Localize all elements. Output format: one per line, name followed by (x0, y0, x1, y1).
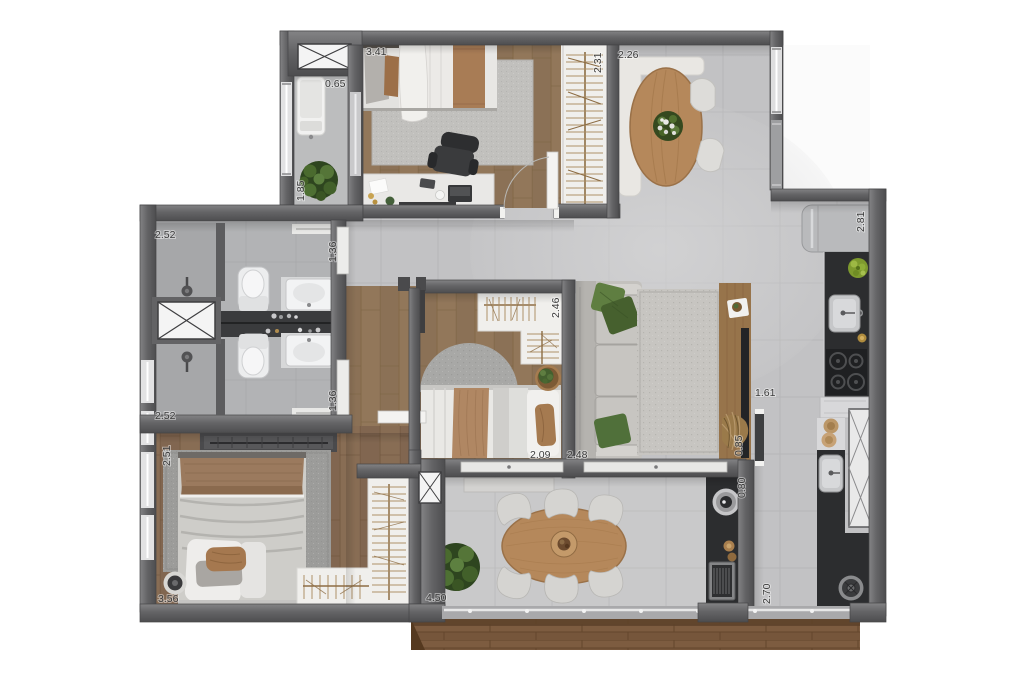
svg-text:2.52: 2.52 (155, 229, 176, 241)
svg-text:0.80: 0.80 (736, 477, 748, 498)
svg-text:2.31: 2.31 (592, 52, 604, 73)
svg-text:0.85: 0.85 (733, 435, 745, 456)
svg-text:4.50: 4.50 (426, 592, 447, 604)
svg-text:2.46: 2.46 (550, 297, 562, 318)
svg-text:2.70: 2.70 (761, 583, 773, 604)
svg-text:2.51: 2.51 (161, 445, 173, 466)
svg-text:3.56: 3.56 (158, 593, 179, 605)
svg-text:2.81: 2.81 (855, 211, 867, 232)
svg-text:1.36: 1.36 (327, 390, 339, 411)
svg-text:1.61: 1.61 (755, 387, 776, 399)
svg-text:2.48: 2.48 (567, 449, 588, 461)
svg-text:1.36: 1.36 (327, 241, 339, 262)
svg-text:1.85: 1.85 (295, 180, 307, 201)
svg-text:2.26: 2.26 (618, 49, 639, 61)
svg-text:3.41: 3.41 (366, 46, 387, 58)
svg-text:0.65: 0.65 (325, 78, 346, 90)
svg-text:2.09: 2.09 (530, 449, 551, 461)
svg-text:2.52: 2.52 (155, 410, 176, 422)
